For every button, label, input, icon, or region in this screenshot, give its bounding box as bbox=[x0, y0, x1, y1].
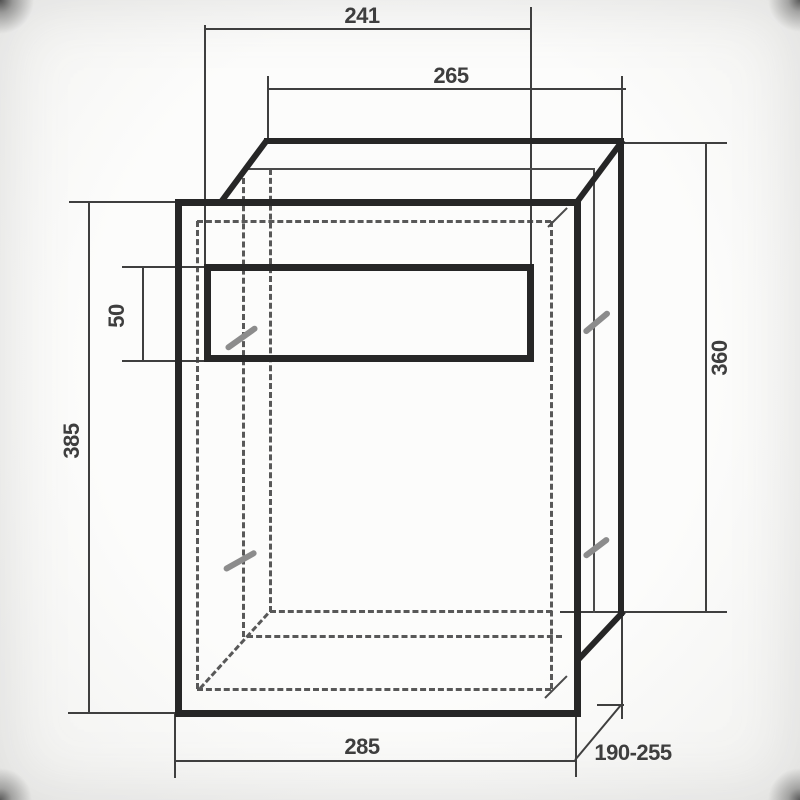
extension-line-360-top bbox=[622, 142, 727, 144]
marker-stroke-side-upper bbox=[582, 309, 611, 335]
box-right-back-edge bbox=[618, 138, 624, 616]
technical-drawing-canvas: 241 265 385 50 360 285 190-255 bbox=[0, 0, 800, 800]
dimension-line-285 bbox=[175, 760, 577, 762]
inner-section-top-edge bbox=[247, 168, 594, 170]
dim-label-panel-width: 285 bbox=[344, 734, 379, 760]
extension-line-285-right bbox=[575, 716, 577, 777]
corner-smudge-bottom-left bbox=[0, 748, 52, 800]
dim-label-body-width: 265 bbox=[433, 63, 468, 89]
dimension-line-50 bbox=[142, 266, 144, 361]
corner-smudge-bottom-right bbox=[748, 748, 800, 800]
mail-slot-outline bbox=[204, 264, 534, 362]
dimension-line-385 bbox=[88, 201, 90, 712]
dim-label-body-height: 360 bbox=[707, 340, 733, 375]
dimension-line-360 bbox=[705, 142, 707, 612]
extension-line-285-left bbox=[174, 714, 176, 778]
dim-label-slot-width: 241 bbox=[344, 3, 379, 29]
box-bottom-right-depth-edge bbox=[575, 609, 626, 663]
dim-label-panel-height: 385 bbox=[59, 423, 85, 458]
extension-line-385-bottom bbox=[68, 712, 180, 714]
corner-smudge-top-left bbox=[0, 0, 52, 52]
extension-line-265-right bbox=[621, 76, 623, 142]
box-top-back-edge bbox=[264, 138, 624, 144]
marker-stroke-side-lower bbox=[582, 536, 610, 560]
corner-smudge-top-right bbox=[748, 0, 800, 52]
dim-label-slot-height: 50 bbox=[104, 304, 130, 327]
dim-label-depth-range: 190-255 bbox=[594, 740, 671, 766]
extension-line-265-left bbox=[267, 76, 269, 142]
extension-line-360-bottom bbox=[560, 611, 727, 613]
